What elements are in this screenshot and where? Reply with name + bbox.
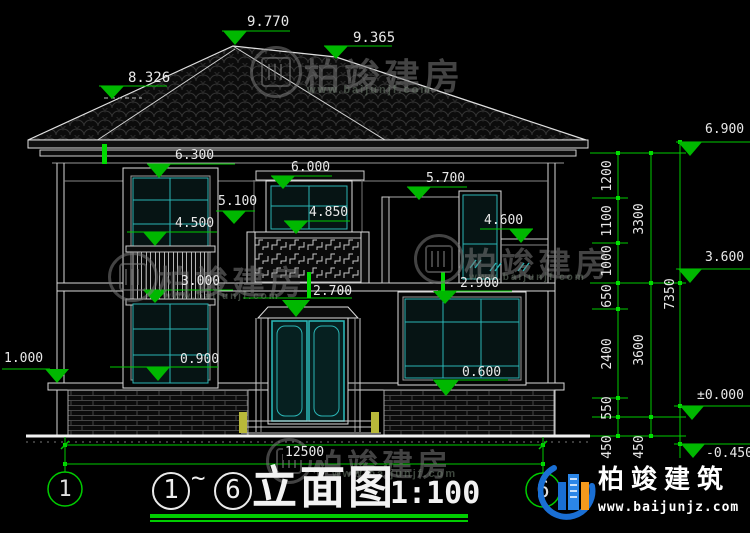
elevation-label-1000: 1.000 — [4, 352, 43, 366]
elevation-label-5700: 5.700 — [426, 172, 465, 186]
dim-label-450-second: 450 — [633, 435, 647, 458]
lower-left-window — [133, 304, 208, 383]
elevation-label-3000: 3.000 — [181, 275, 220, 289]
dim-label-1200: 1200 — [601, 160, 615, 191]
dim-label-550: 550 — [601, 396, 615, 419]
dim-label-7350: 7350 — [664, 278, 678, 309]
dim-label-12500: 12500 — [283, 446, 326, 460]
elevation-label-4500: 4.500 — [175, 217, 214, 231]
elevation-label-6900: 6.900 — [705, 123, 744, 137]
brick-plinth-right — [384, 390, 554, 437]
elevation-drawing-sheet: 柏竣建房 www.baijunjf.com 柏竣建房 www.baijunjf.… — [0, 0, 750, 533]
title-tilde: ~ — [191, 466, 205, 490]
elevation-label-4600: 4.600 — [484, 214, 523, 228]
elevation-label-9770: 9.770 — [247, 15, 289, 30]
ground-line — [26, 436, 590, 442]
elevation-label-0900: 0.900 — [180, 353, 219, 367]
elevation-label-2700: 2.700 — [313, 285, 352, 299]
dim-label-450-first: 450 — [601, 435, 615, 458]
watermark-logo-icon — [108, 252, 158, 302]
title-axis-to: 6 — [214, 472, 252, 510]
drawing-scale: 1:100 — [390, 479, 480, 509]
green-grid-tick — [102, 144, 107, 164]
elevation-label-3600: 3.600 — [705, 251, 744, 265]
watermark-logo-icon — [250, 46, 302, 98]
elevation-label-0600: 0.600 — [462, 366, 501, 380]
dim-label-2400: 2400 — [601, 338, 615, 369]
axis-number-left: 1 — [48, 479, 82, 501]
publisher-brand: 柏竣建筑 — [598, 466, 730, 492]
door-canopy — [258, 307, 358, 318]
elevation-label-9365: 9.365 — [353, 31, 395, 46]
watermark-site: www.baijunjf.com — [163, 291, 280, 302]
dim-label-1000: 1000 — [601, 245, 615, 276]
publisher-logo-icon — [538, 462, 598, 528]
dim-label-3300: 3300 — [633, 203, 647, 234]
upper-left-window — [133, 178, 208, 248]
elevation-label-4850: 4.850 — [309, 206, 348, 220]
door-leaf-right — [309, 321, 344, 421]
elevation-label-zero: ±0.000 — [697, 389, 744, 403]
entrance-door — [239, 307, 381, 433]
elevation-label-2900: 2.900 — [460, 277, 499, 291]
dim-label-650: 650 — [601, 284, 615, 307]
dim-label-3600: 3600 — [633, 334, 647, 365]
dim-label-1100: 1100 — [601, 205, 615, 236]
elevation-label-8326: 8.326 — [128, 71, 170, 86]
elevation-label-minus450: -0.450 — [706, 447, 750, 461]
elevation-label-6300: 6.300 — [175, 149, 214, 163]
publisher-site: www.baijunjz.com — [598, 501, 739, 514]
elevation-label-5100: 5.100 — [218, 195, 257, 209]
elevation-label-6000: 6.000 — [291, 161, 330, 175]
door-leaf-left — [272, 321, 307, 421]
step-cheek-left — [239, 412, 247, 433]
brick-plinth-left — [68, 390, 248, 437]
drawing-title: 立面图 — [252, 465, 396, 510]
watermark-site: www.baijunjf.com — [307, 84, 432, 96]
title-axis-from: 1 — [152, 472, 190, 510]
step-cheek-right — [371, 412, 379, 433]
watermark-logo-icon — [414, 234, 464, 284]
title-underline — [150, 514, 468, 522]
